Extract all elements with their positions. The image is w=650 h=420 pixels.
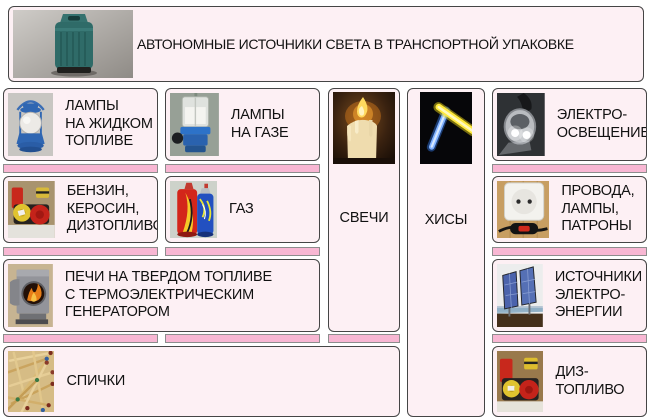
box-glow-sticks: ХИСЫ	[407, 88, 485, 417]
box-candles: СВЕЧИ	[328, 88, 400, 332]
box-candles-label: СВЕЧИ	[340, 210, 389, 228]
box-wiring: ПРОВОДА, ЛАМПЫ, ПАТРОНЫ	[492, 176, 647, 243]
transport-case-photo	[13, 10, 133, 78]
matches-photo	[8, 351, 54, 412]
connector-strip	[3, 247, 158, 256]
box-gas-fuel-label: ГАЗ	[221, 201, 258, 219]
box-electric-lighting-label: ЭЛЕКТРО- ОСВЕЩЕНИЕ	[549, 107, 647, 143]
fuel-barrels-photo	[8, 181, 55, 238]
box-power-sources-label: ИСТОЧНИКИ ЭЛЕКТРО- ЭНЕРГИИ	[547, 269, 646, 323]
box-wiring-label: ПРОВОДА, ЛАМПЫ, ПАТРОНЫ	[553, 183, 638, 237]
solid-fuel-stove-photo	[8, 264, 53, 327]
box-liquid-fuel: БЕНЗИН, КЕРОСИН, ДИЗТОПЛИВО	[3, 176, 158, 243]
box-liquid-fuel-lamps-label: ЛАМПЫ НА ЖИДКОМ ТОПЛИВЕ	[57, 98, 157, 152]
box-glow-sticks-label: ХИСЫ	[425, 212, 468, 230]
box-liquid-fuel-label: БЕНЗИН, КЕРОСИН, ДИЗТОПЛИВО	[59, 183, 158, 237]
glow-sticks-photo	[420, 92, 472, 164]
gas-lamp-photo	[170, 93, 219, 156]
connector-strip	[165, 247, 320, 256]
header-box: АВТОНОМНЫЕ ИСТОЧНИКИ СВЕТА В ТРАНСПОРТНО…	[8, 6, 644, 82]
connector-strip	[165, 334, 320, 343]
box-electric-lighting: ЭЛЕКТРО- ОСВЕЩЕНИЕ	[492, 88, 647, 161]
burning-candle-photo	[333, 92, 395, 164]
connector-strip	[492, 164, 647, 173]
solar-panels-photo	[497, 264, 543, 327]
box-liquid-fuel-lamps: ЛАМПЫ НА ЖИДКОМ ТОПЛИВЕ	[3, 88, 158, 161]
box-solid-fuel-stoves-label: ПЕЧИ НА ТВЕРДОМ ТОПЛИВЕ С ТЕРМОЭЛЕКТРИЧЕ…	[57, 269, 276, 323]
box-power-sources: ИСТОЧНИКИ ЭЛЕКТРО- ЭНЕРГИИ	[492, 259, 647, 332]
box-gas-lamps-label: ЛАМПЫ НА ГАЗЕ	[223, 107, 293, 143]
diagram-canvas: АВТОНОМНЫЕ ИСТОЧНИКИ СВЕТА В ТРАНСПОРТНО…	[0, 0, 650, 420]
diesel-barrels-photo	[497, 351, 543, 412]
box-solid-fuel-stoves: ПЕЧИ НА ТВЕРДОМ ТОПЛИВЕ С ТЕРМОЭЛЕКТРИЧЕ…	[3, 259, 320, 332]
connector-strip	[3, 164, 158, 173]
connector-strip	[328, 334, 400, 343]
box-gas-fuel: ГАЗ	[165, 176, 320, 243]
socket-switch-photo	[497, 181, 549, 238]
box-diesel-fuel-label: ДИЗ- ТОПЛИВО	[547, 364, 628, 400]
box-matches: СПИЧКИ	[3, 346, 400, 417]
connector-strip	[165, 164, 320, 173]
diagram-title: АВТОНОМНЫЕ ИСТОЧНИКИ СВЕТА В ТРАНСПОРТНО…	[137, 36, 644, 52]
led-flashlight-photo	[497, 93, 545, 156]
connector-strip	[492, 247, 647, 256]
connector-strip	[3, 334, 158, 343]
kerosene-lantern-photo	[8, 93, 53, 156]
box-diesel-fuel: ДИЗ- ТОПЛИВО	[492, 346, 647, 417]
connector-strip	[492, 334, 647, 343]
box-gas-lamps: ЛАМПЫ НА ГАЗЕ	[165, 88, 320, 161]
gas-canisters-photo	[170, 181, 217, 238]
box-matches-label: СПИЧКИ	[58, 373, 129, 391]
